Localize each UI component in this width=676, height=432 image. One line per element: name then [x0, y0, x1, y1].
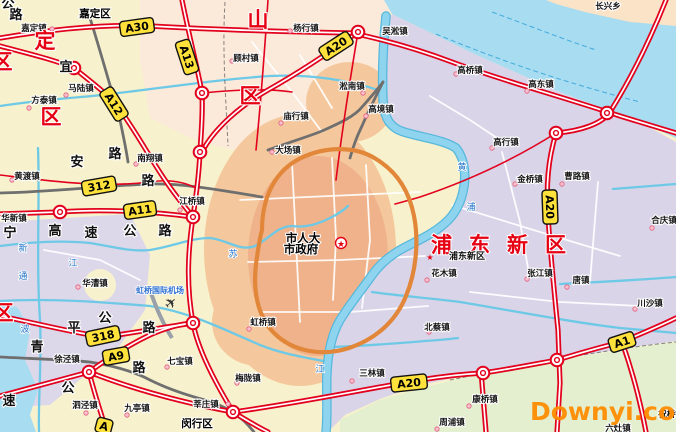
- district-label: 闵行区: [181, 417, 213, 430]
- town-label: 曹路镇: [564, 171, 590, 182]
- interchange-icon: [87, 370, 92, 375]
- interchange-icon: [58, 210, 63, 215]
- town-label: 长兴乡: [595, 1, 621, 12]
- watermark: Downyi.com: [530, 397, 676, 426]
- town-label: 华漕镇: [82, 278, 108, 289]
- town-label: 高桥镇: [457, 65, 483, 76]
- town-label: 莘庄镇: [193, 399, 219, 410]
- town-label: 七宝镇: [167, 356, 193, 367]
- town-label: 高行镇: [493, 137, 519, 148]
- road-name-char: 路: [9, 7, 23, 23]
- highway-badge-label: A20: [397, 376, 422, 391]
- road-name-char: 高: [48, 223, 61, 239]
- town-dot: [270, 150, 274, 154]
- town-label: 周浦镇: [439, 417, 465, 428]
- airport-label: 虹桥国际机场: [136, 285, 184, 295]
- town-label: 川沙镇: [636, 298, 663, 309]
- river-name-char: 新: [18, 242, 27, 254]
- interchange-icon: [191, 215, 196, 220]
- district-name-red: 区: [41, 105, 62, 129]
- road-name-char: 安: [70, 154, 83, 170]
- town-label: 北蔡镇: [424, 322, 450, 333]
- town-dot: [84, 411, 88, 415]
- star-icon: ★: [337, 240, 345, 250]
- town-label: 吴淞镇: [382, 26, 408, 37]
- road-name-char: 青: [30, 339, 43, 355]
- road-name-char: 公: [61, 381, 74, 396]
- town-label: 三林镇: [359, 368, 385, 379]
- road-name-char: 路: [158, 223, 172, 239]
- town-label: 金桥镇: [516, 174, 543, 185]
- river-name-char: 浦: [466, 201, 475, 213]
- district-name-red: 区: [0, 301, 14, 325]
- town-label: 康桥镇: [472, 394, 498, 405]
- town-label: 大场镇: [275, 145, 301, 156]
- town-label: 华新镇: [1, 213, 27, 224]
- road-name-char: 路: [108, 146, 122, 162]
- town-dot: [650, 226, 654, 230]
- river-name-char: 江: [68, 258, 77, 269]
- town-label: 淞南镇: [339, 81, 365, 92]
- district-name-red: 区: [0, 50, 13, 74]
- highway-badge: A20: [542, 190, 558, 225]
- town-dot: [27, 106, 31, 110]
- town-label: 唐镇: [572, 275, 590, 286]
- highway-badge: A20: [390, 374, 427, 393]
- river-name-char: 江: [315, 364, 324, 375]
- town-label: 虹桥镇: [250, 317, 276, 328]
- road-name-char: 宜: [59, 59, 72, 75]
- town-label: 黄渡镇: [14, 171, 40, 182]
- town-label: 梅陇镇: [235, 373, 261, 384]
- town-label: 杨行镇: [293, 23, 319, 34]
- river-name-char: 波: [20, 323, 29, 335]
- town-dot: [565, 285, 569, 289]
- interchange-icon: [554, 131, 559, 136]
- interchange-icon: [605, 111, 610, 116]
- interchange-icon: [481, 371, 486, 376]
- town-label: 泗泾镇: [72, 400, 98, 411]
- town-dot: [467, 404, 471, 408]
- road-name-char: 公: [123, 224, 136, 239]
- town-label: 高境镇: [368, 104, 394, 115]
- town-dot: [178, 208, 182, 212]
- river-name-char: 苏: [228, 248, 237, 260]
- town-label: 马陆镇: [68, 83, 94, 94]
- town-label: 九亭镇: [123, 403, 150, 414]
- interchange-icon: [231, 410, 236, 415]
- river-name-char: 通: [18, 271, 27, 282]
- highway-badge-label: A20: [543, 195, 557, 220]
- pudong-office-label: 浦东新区: [449, 250, 485, 262]
- town-dot: [560, 182, 564, 186]
- town-dot: [288, 29, 292, 33]
- map-canvas: 嘉定镇顾村镇杨行镇吴淞镇淞南镇高境镇庙行镇大场镇马陆镇方泰镇黄渡镇南翔镇江桥镇华…: [0, 0, 676, 432]
- town-label: 顾村镇: [233, 53, 259, 64]
- town-label: 徐泾镇: [53, 354, 80, 365]
- highway-badge-label: A9: [107, 349, 125, 365]
- road-name-char: 路: [142, 320, 156, 336]
- interchange-icon: [200, 91, 205, 96]
- road-name-char: 速: [2, 393, 15, 409]
- road-name-char: 公: [98, 311, 111, 326]
- road-name-char: 速: [84, 225, 97, 241]
- road-name-char: 平: [67, 321, 80, 336]
- shanghai-road-map: 嘉定镇顾村镇杨行镇吴淞镇淞南镇高境镇庙行镇大场镇马陆镇方泰镇黄渡镇南翔镇江桥镇华…: [0, 0, 676, 432]
- town-label: 南翔镇: [137, 153, 163, 164]
- town-label: 花木镇: [431, 268, 457, 279]
- interchange-icon: [198, 150, 203, 155]
- town-label: 江桥镇: [179, 196, 205, 207]
- road-name-char: 路: [132, 360, 146, 376]
- river-name-char: 黄: [457, 161, 466, 173]
- town-label: 合庆镇: [650, 215, 676, 226]
- town-dot: [425, 278, 429, 282]
- district-label: 嘉定区: [78, 7, 111, 20]
- district-name-red: 区: [240, 84, 261, 108]
- town-label: 张江镇: [527, 268, 553, 279]
- road-name-char: 路: [141, 173, 155, 189]
- district-name-red: 定: [35, 29, 56, 53]
- district-name-red: 山: [248, 8, 269, 32]
- town-label: 高东镇: [528, 79, 554, 90]
- star-icon: ★: [426, 253, 433, 262]
- town-dot: [350, 379, 354, 383]
- town-dot: [76, 285, 80, 289]
- town-label: 庙行镇: [283, 111, 309, 122]
- road-name-char: 宁: [3, 225, 16, 241]
- interchange-icon: [356, 30, 361, 35]
- interchange-icon: [555, 358, 560, 363]
- interchange-icon: [191, 321, 196, 326]
- gov-label-line2: 市政府: [284, 242, 319, 256]
- town-dot: [226, 402, 230, 406]
